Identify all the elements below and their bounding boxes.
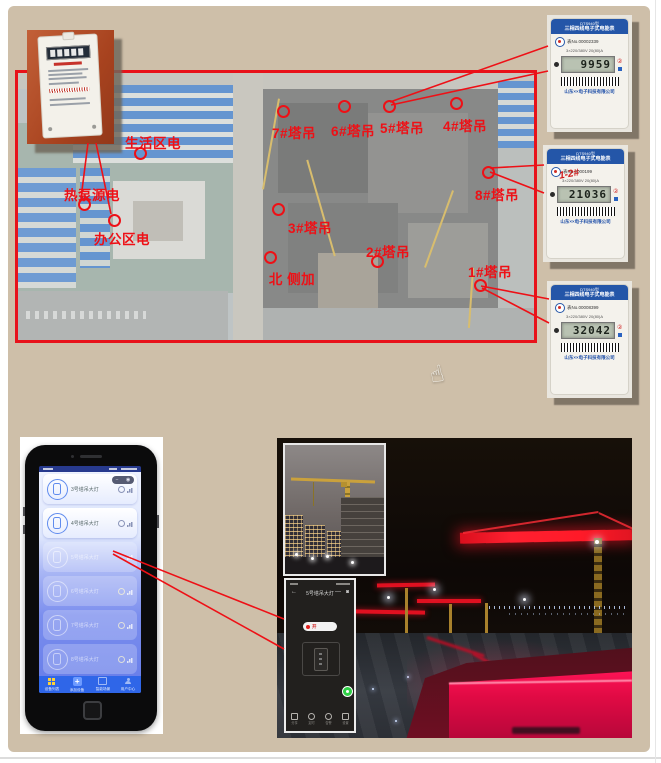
device-card-4[interactable]: 6号塔吊大灯 (43, 576, 137, 606)
timer-action[interactable]: 定时 (308, 713, 315, 726)
label-crane8: 8#塔吊 (475, 184, 519, 204)
device-card-label: 6号塔吊大灯 (71, 588, 115, 595)
socket-icon (47, 581, 68, 602)
meter-button (554, 328, 559, 333)
label-crane6: 6#塔吊 (331, 120, 375, 140)
minimize-icon[interactable]: — (335, 589, 341, 595)
label-crane3: 3#塔吊 (288, 217, 332, 237)
socket-icon (47, 479, 68, 500)
label-crane7: 7#塔吊 (272, 122, 316, 142)
socket-icon (47, 513, 68, 534)
meter-button (550, 192, 555, 197)
power-dot-icon (306, 625, 310, 629)
marker-circle-north (264, 251, 277, 264)
meter-company: 山东××电子科技有限公司 (551, 89, 628, 95)
socket-icon (47, 547, 68, 568)
signal-icon (127, 555, 133, 560)
meter-button (554, 62, 559, 67)
ir-port (618, 333, 622, 337)
volume-button[interactable] (23, 525, 25, 534)
barcode (561, 77, 619, 86)
signal-icon (127, 522, 133, 527)
control-actions: 分享 定时 告警 设置 (286, 713, 354, 726)
meter-header: DTS940型 三相四线电子式电能表 (551, 285, 628, 300)
alarm-icon (325, 713, 332, 720)
nav-user-center[interactable]: 用户中心 (116, 676, 142, 693)
user-icon (125, 678, 132, 685)
grid-icon (48, 678, 55, 685)
device-card-label: 3号塔吊大灯 (71, 486, 115, 493)
meter-serial: 表No.00002339 (567, 39, 599, 45)
settings-icon (342, 713, 349, 720)
float-chat-icon[interactable] (342, 686, 353, 697)
device-card-label: 4号塔吊大灯 (71, 520, 115, 527)
label-heatpump-power: 热泵源电 (64, 184, 120, 204)
lcd-display: 9959 (561, 56, 615, 73)
ir-port (614, 197, 618, 201)
device-card-label: 8号塔吊大灯 (71, 656, 115, 663)
marker-circle-crane3 (272, 203, 285, 216)
control-title: 5号塔吊大灯 (286, 590, 354, 597)
device-card-5[interactable]: 7号塔吊大灯 (43, 610, 137, 640)
plus-icon: + (73, 677, 82, 686)
register-window (46, 45, 91, 60)
socket-icon (47, 615, 68, 636)
control-screenshot: ← 5号塔吊大灯 — ◙ 开 分享 定时 (284, 578, 356, 733)
device-card-1[interactable]: 3号塔吊大灯 −◉ (43, 474, 137, 504)
label-crane2: 2#塔吊 (366, 241, 410, 261)
barcode (557, 207, 615, 216)
timer-icon (118, 656, 125, 663)
window-icon[interactable]: ◙ (346, 589, 349, 595)
signal-icon (127, 658, 133, 663)
scene-icon (98, 677, 107, 685)
label-crane4: 4#塔吊 (443, 115, 487, 135)
volume-button[interactable] (23, 507, 25, 516)
settings-action[interactable]: 设置 (342, 713, 349, 726)
timer-icon (118, 622, 125, 629)
marker-circle-crane5 (383, 100, 396, 113)
brand-logo-icon (555, 303, 565, 313)
socket-icon (47, 649, 68, 670)
device-outline (302, 642, 340, 676)
power-status-pill[interactable]: 开 (303, 622, 337, 631)
brand-logo-icon (555, 37, 565, 47)
marker-circle-crane6 (338, 100, 351, 113)
power-toggle[interactable]: −◉ (112, 476, 134, 484)
meter-header: DTS940型 三相四线电子式电能表 (547, 149, 624, 164)
share-icon (291, 713, 298, 720)
slide-canvas: 生活区电 热泵源电 办公区电 7#塔吊 6#塔吊 5#塔吊 4#塔吊 8#塔吊 … (0, 0, 661, 763)
city-lights (489, 606, 629, 609)
timer-icon (118, 520, 125, 527)
meter-photo-3: DTS940型 三相四线电子式电能表 表No.00008399 3×220/38… (547, 281, 632, 398)
nav-add-device[interactable]: + 添加设备 (65, 676, 91, 693)
timer-icon (118, 486, 125, 493)
red-barcode (49, 87, 89, 93)
nav-device-list[interactable]: 设备列表 (39, 676, 65, 693)
label-crane5: 5#塔吊 (380, 117, 424, 137)
device-card-label: 7号塔吊大灯 (71, 622, 115, 629)
smart-switch-icon (314, 648, 328, 671)
device-card-label: 5号塔吊大灯 (71, 554, 124, 561)
device-card-6[interactable]: 8号塔吊大灯 (43, 644, 137, 674)
page-right-edge (655, 0, 656, 763)
lcd-display: 21036 (557, 186, 611, 203)
share-action[interactable]: 分享 (291, 713, 298, 726)
label-north-side: 北 侧加 (269, 268, 315, 288)
meter-company: 山东××电子科技有限公司 (551, 355, 628, 361)
meter-header: DTS940型 三相四线电子式电能表 (551, 19, 628, 34)
day-crane-jib (291, 478, 375, 484)
meter-photo-main (27, 30, 114, 144)
bottom-nav: 设备列表 + 添加设备 智能场景 用户中心 (39, 676, 141, 693)
meter-photo-2: DTS940型 三相四线电子式电能表 表No.0000199 3×220/380… (543, 145, 628, 262)
speaker-slot (80, 455, 102, 458)
device-card-2[interactable]: 4号塔吊大灯 (43, 508, 137, 538)
marker-circle-crane8 (482, 166, 495, 179)
alarm-action[interactable]: 告警 (325, 713, 332, 726)
meter-company: 山东××电子科技有限公司 (547, 219, 624, 225)
crane-jib-red (460, 529, 632, 544)
label-living-area-power: 生活区电 (125, 132, 181, 152)
label-crane1: 1#塔吊 (468, 261, 512, 281)
meter-photo-1: DTS940型 三相四线电子式电能表 表No.00002339 3×220/38… (547, 15, 632, 132)
meter-serial: 表No.00008399 (567, 305, 599, 311)
timer-icon (118, 588, 125, 595)
device-card-3[interactable]: 5号塔吊大灯 (43, 542, 137, 572)
brand-mark (54, 61, 82, 65)
marker-circle-crane7 (277, 105, 290, 118)
power-button[interactable] (157, 515, 159, 528)
signal-icon (127, 488, 133, 493)
lcd-display: 32042 (561, 322, 615, 339)
camera-dot (71, 455, 74, 458)
app-screen: 3号塔吊大灯 −◉ 4号塔吊大灯 5号塔吊大灯 (39, 466, 141, 693)
phone-mockup: 3号塔吊大灯 −◉ 4号塔吊大灯 5号塔吊大灯 (20, 437, 163, 734)
page-bottom-edge (0, 757, 661, 759)
ir-port (618, 67, 622, 71)
structure-logo (512, 727, 580, 734)
meter-device (37, 33, 102, 138)
night-photo: ← 5号塔吊大灯 — ◙ 开 分享 定时 (277, 438, 632, 738)
timer-icon (308, 713, 315, 720)
signal-icon (127, 590, 133, 595)
label-office-area-power: 办公区电 (94, 228, 150, 248)
marker-circle-office (108, 214, 121, 227)
barcode (561, 343, 619, 352)
nav-scenes[interactable]: 智能场景 (90, 676, 116, 693)
home-button[interactable] (83, 701, 102, 720)
inset-day-photo (283, 443, 386, 576)
marker-circle-crane4 (450, 97, 463, 110)
signal-icon (127, 624, 133, 629)
phone-frame: 3号塔吊大灯 −◉ 4号塔吊大灯 5号塔吊大灯 (25, 445, 157, 731)
